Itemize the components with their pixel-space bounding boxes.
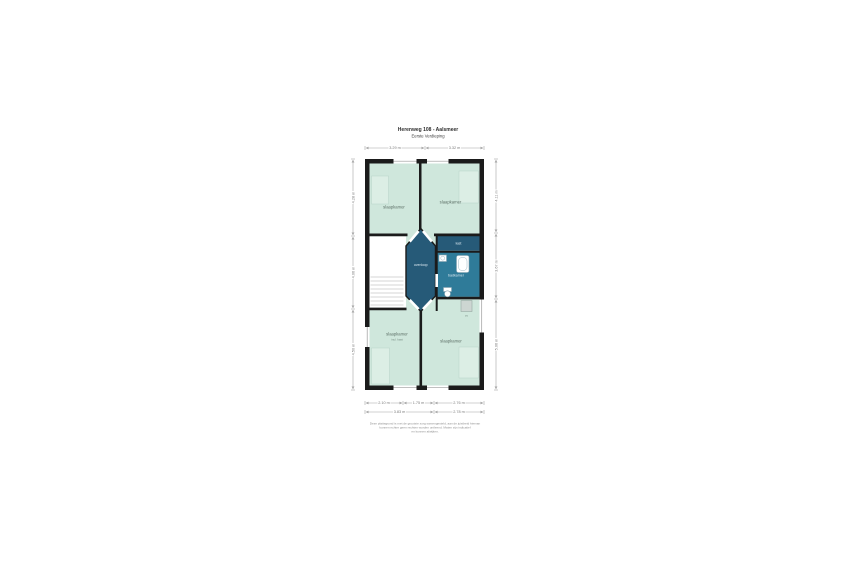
dim-bottom2-1: 3.83 m xyxy=(394,410,406,414)
label-bathroom: badkamer xyxy=(448,274,465,278)
dim-bottom1-2: 1.75 m xyxy=(413,401,425,405)
label-bedroom-top-right: slaapkamer xyxy=(440,200,462,205)
bed-bottom-right xyxy=(459,347,479,378)
label-bedroom-bottom-left-sub: incl. kast xyxy=(391,338,403,342)
cv-label: cv xyxy=(465,314,469,318)
disclaimer-line3: en kunnen afwijken. xyxy=(411,430,438,434)
bed-top-left xyxy=(372,176,389,204)
dimension-left: 4.28 m 4.06 m 4.50 m xyxy=(351,159,355,390)
dimension-top: 3.29 m 3.32 m xyxy=(365,146,484,151)
dim-right-1: 4.11 m xyxy=(494,190,498,201)
cv-unit xyxy=(461,301,472,312)
label-bedroom-bottom-left: slaapkamer xyxy=(386,332,408,337)
dim-right-2: 3.67 m xyxy=(494,260,498,272)
label-closet: kast xyxy=(456,242,462,246)
dim-bottom1-3: 2.76 m xyxy=(453,401,465,405)
dim-left-2: 4.06 m xyxy=(351,267,355,279)
bed-top-right xyxy=(459,171,479,203)
plan-subtitle: Eerste Verdieping xyxy=(411,134,445,139)
dim-top-1: 3.29 m xyxy=(389,146,401,150)
dimension-bottom-row2: 3.83 m 2.78 m xyxy=(365,410,484,415)
dimension-right: 4.11 m 3.67 m 5.06 m xyxy=(494,159,498,390)
label-bedroom-bottom-right: slaapkamer xyxy=(440,339,462,344)
dim-top-2: 3.32 m xyxy=(449,146,461,150)
dimension-bottom-row1: 2.10 m 1.75 m 2.76 m xyxy=(365,401,484,406)
dim-left-1: 4.28 m xyxy=(351,192,355,204)
bed-bottom-left xyxy=(372,348,390,384)
dim-right-3: 5.06 m xyxy=(494,339,498,351)
dim-left-3: 4.50 m xyxy=(351,344,355,356)
floorplan-svg: Herenweg 108 - Aalsmeer Eerste Verdiepin… xyxy=(0,0,848,565)
label-bedroom-top-left: slaapkamer xyxy=(383,205,405,210)
plan-title: Herenweg 108 - Aalsmeer xyxy=(398,127,458,133)
floorplan-page: Herenweg 108 - Aalsmeer Eerste Verdiepin… xyxy=(0,0,848,565)
toilet-bowl xyxy=(445,291,451,297)
dim-bottom1-1: 2.10 m xyxy=(378,401,390,405)
dim-bottom2-2: 2.78 m xyxy=(453,410,465,414)
label-landing: overloop xyxy=(414,263,428,267)
